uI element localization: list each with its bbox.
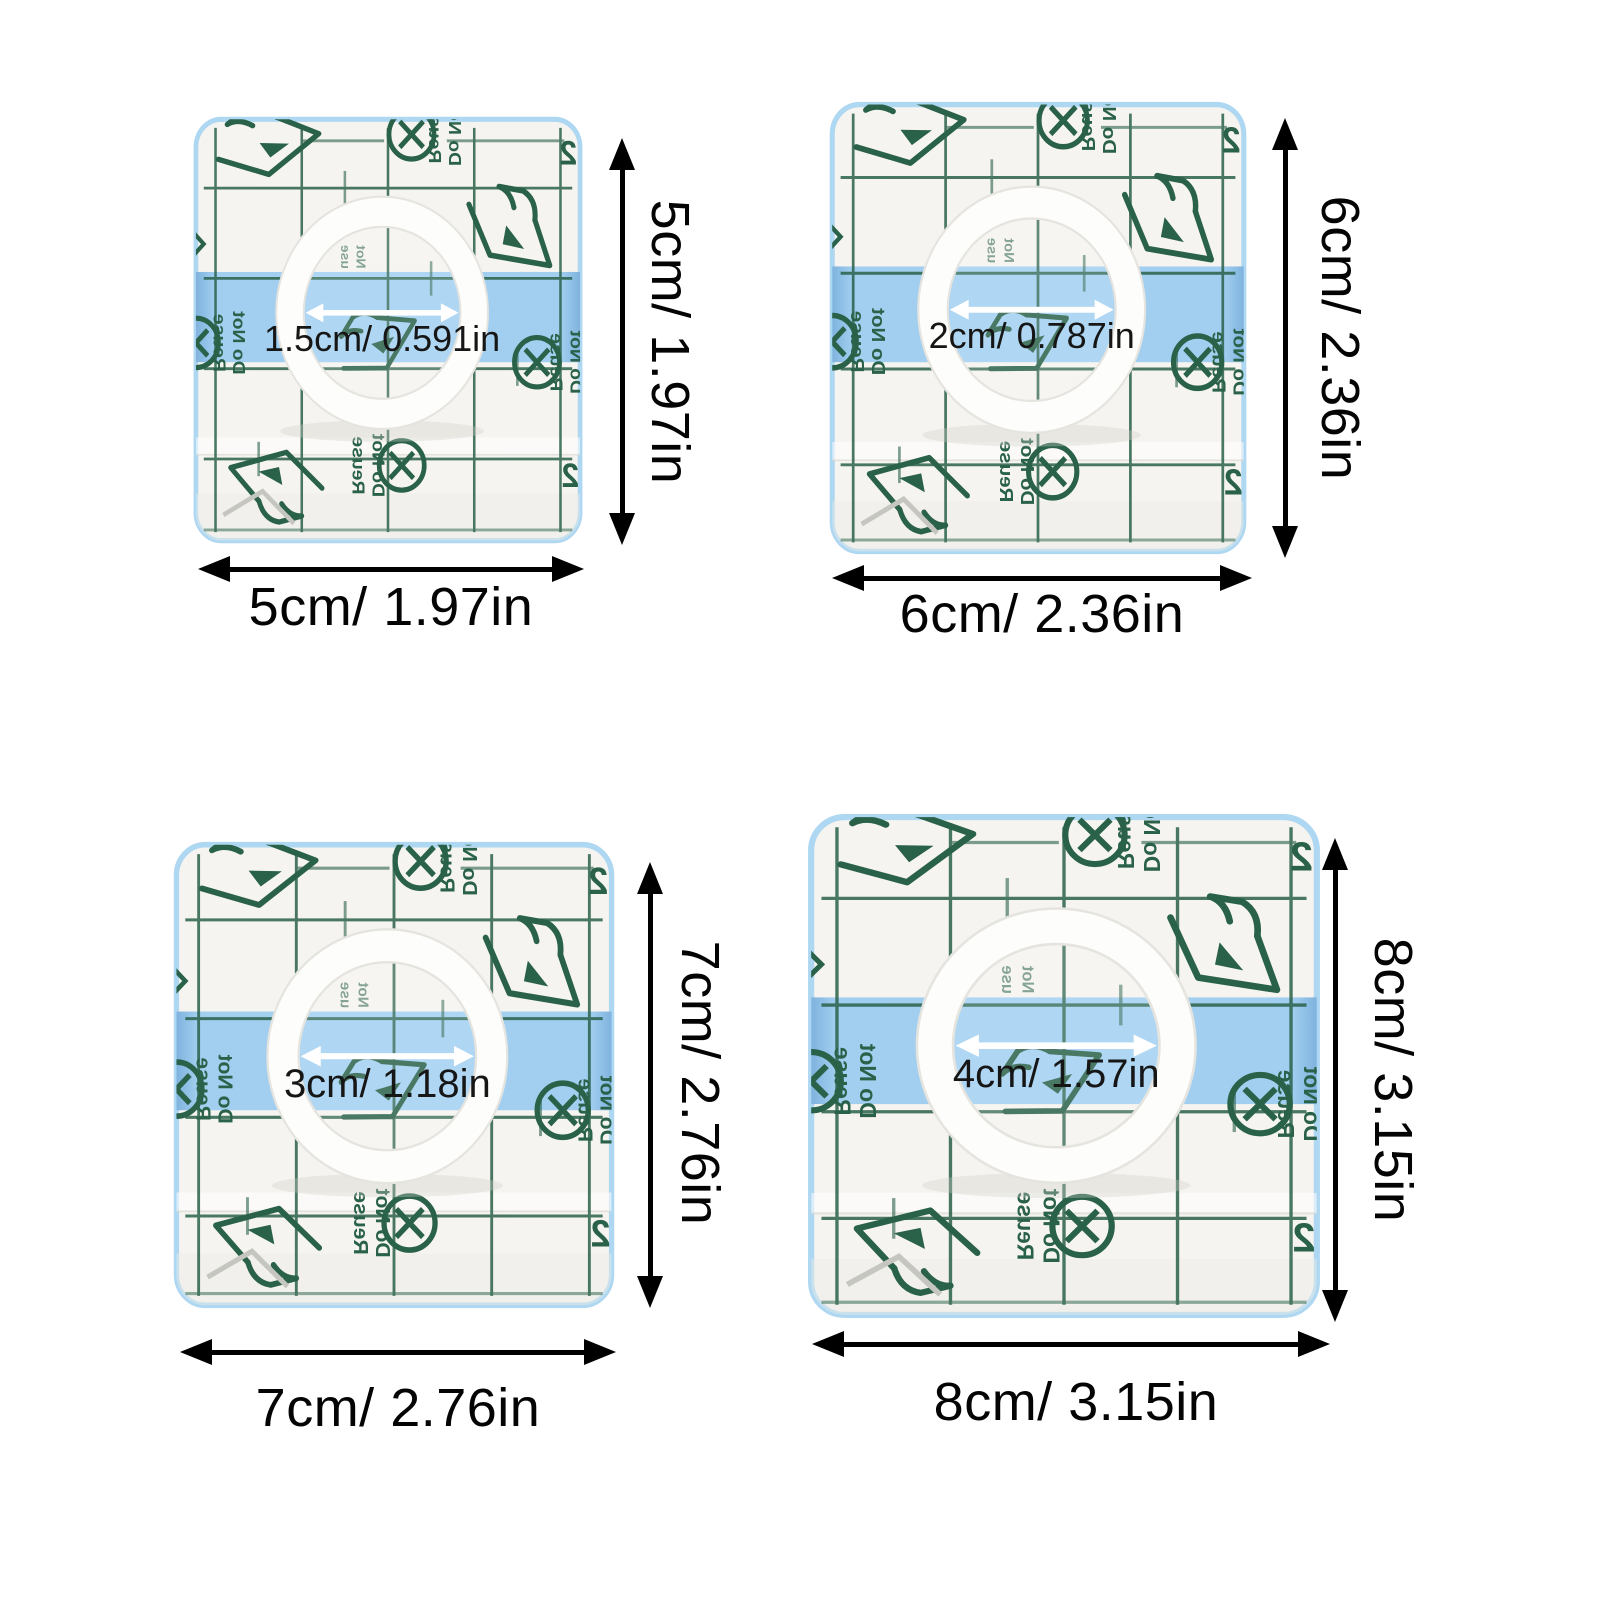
patch-8cm-width-arrow: [812, 1331, 1330, 1357]
patch-5cm-hole-label: 1.5cm/ 0.591in: [264, 319, 500, 359]
patch-5cm: 1.5cm/ 0.591in: [192, 115, 584, 545]
patch-6cm-width-label: 6cm/ 2.36in: [900, 583, 1185, 645]
patch-7cm-height-label: 7cm/ 2.76in: [669, 941, 731, 1226]
patch-8cm: 4cm/ 1.57in: [806, 812, 1322, 1320]
patch-8cm-height-arrow: [1322, 838, 1348, 1322]
patch-5cm-height-arrow: [609, 138, 635, 545]
patch-6cm-hole-label: 2cm/ 0.787in: [929, 316, 1135, 356]
product-dimension-diagram: 1.5cm/ 0.591in 5cm/ 1.97in 5cm/ 1.97in 2…: [0, 0, 1600, 1600]
patch-7cm-height-arrow: [637, 862, 663, 1308]
patch-7cm-width-arrow: [180, 1339, 616, 1365]
patch-7cm-hole-label: 3cm/ 1.18in: [284, 1062, 491, 1106]
patch-7cm-width-label: 7cm/ 2.76in: [256, 1377, 541, 1439]
patch-6cm-height-label: 6cm/ 2.36in: [1309, 196, 1371, 481]
patch-8cm-height-label: 8cm/ 3.15in: [1362, 938, 1424, 1223]
patch-6cm-height-arrow: [1272, 118, 1298, 558]
patch-8cm-hole-label: 4cm/ 1.57in: [953, 1052, 1160, 1096]
patch-8cm-width-label: 8cm/ 3.15in: [934, 1371, 1219, 1433]
patch-5cm-width-label: 5cm/ 1.97in: [249, 576, 534, 638]
patch-6cm: 2cm/ 0.787in: [828, 100, 1248, 556]
patch-5cm-height-label: 5cm/ 1.97in: [639, 200, 701, 485]
patch-7cm: 3cm/ 1.18in: [172, 840, 616, 1310]
